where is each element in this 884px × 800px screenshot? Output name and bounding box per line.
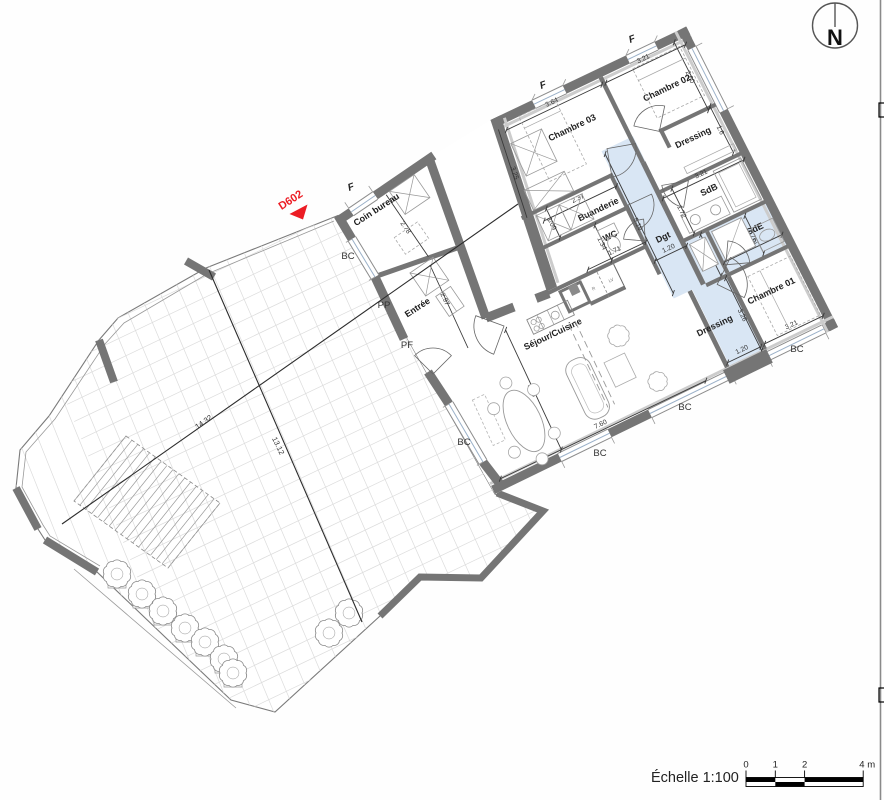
svg-text:BC: BC [678,402,691,413]
svg-text:4 m: 4 m [859,760,875,771]
svg-text:N: N [827,25,843,50]
svg-text:PF: PF [401,340,413,351]
svg-text:0: 0 [743,760,748,771]
svg-text:BC: BC [341,251,354,262]
svg-text:BC: BC [790,344,803,355]
svg-text:BC: BC [457,437,470,448]
svg-text:BC: BC [593,448,606,459]
svg-text:Échelle 1:100: Échelle 1:100 [651,769,739,786]
svg-text:1: 1 [773,760,778,771]
svg-text:2: 2 [802,760,807,771]
